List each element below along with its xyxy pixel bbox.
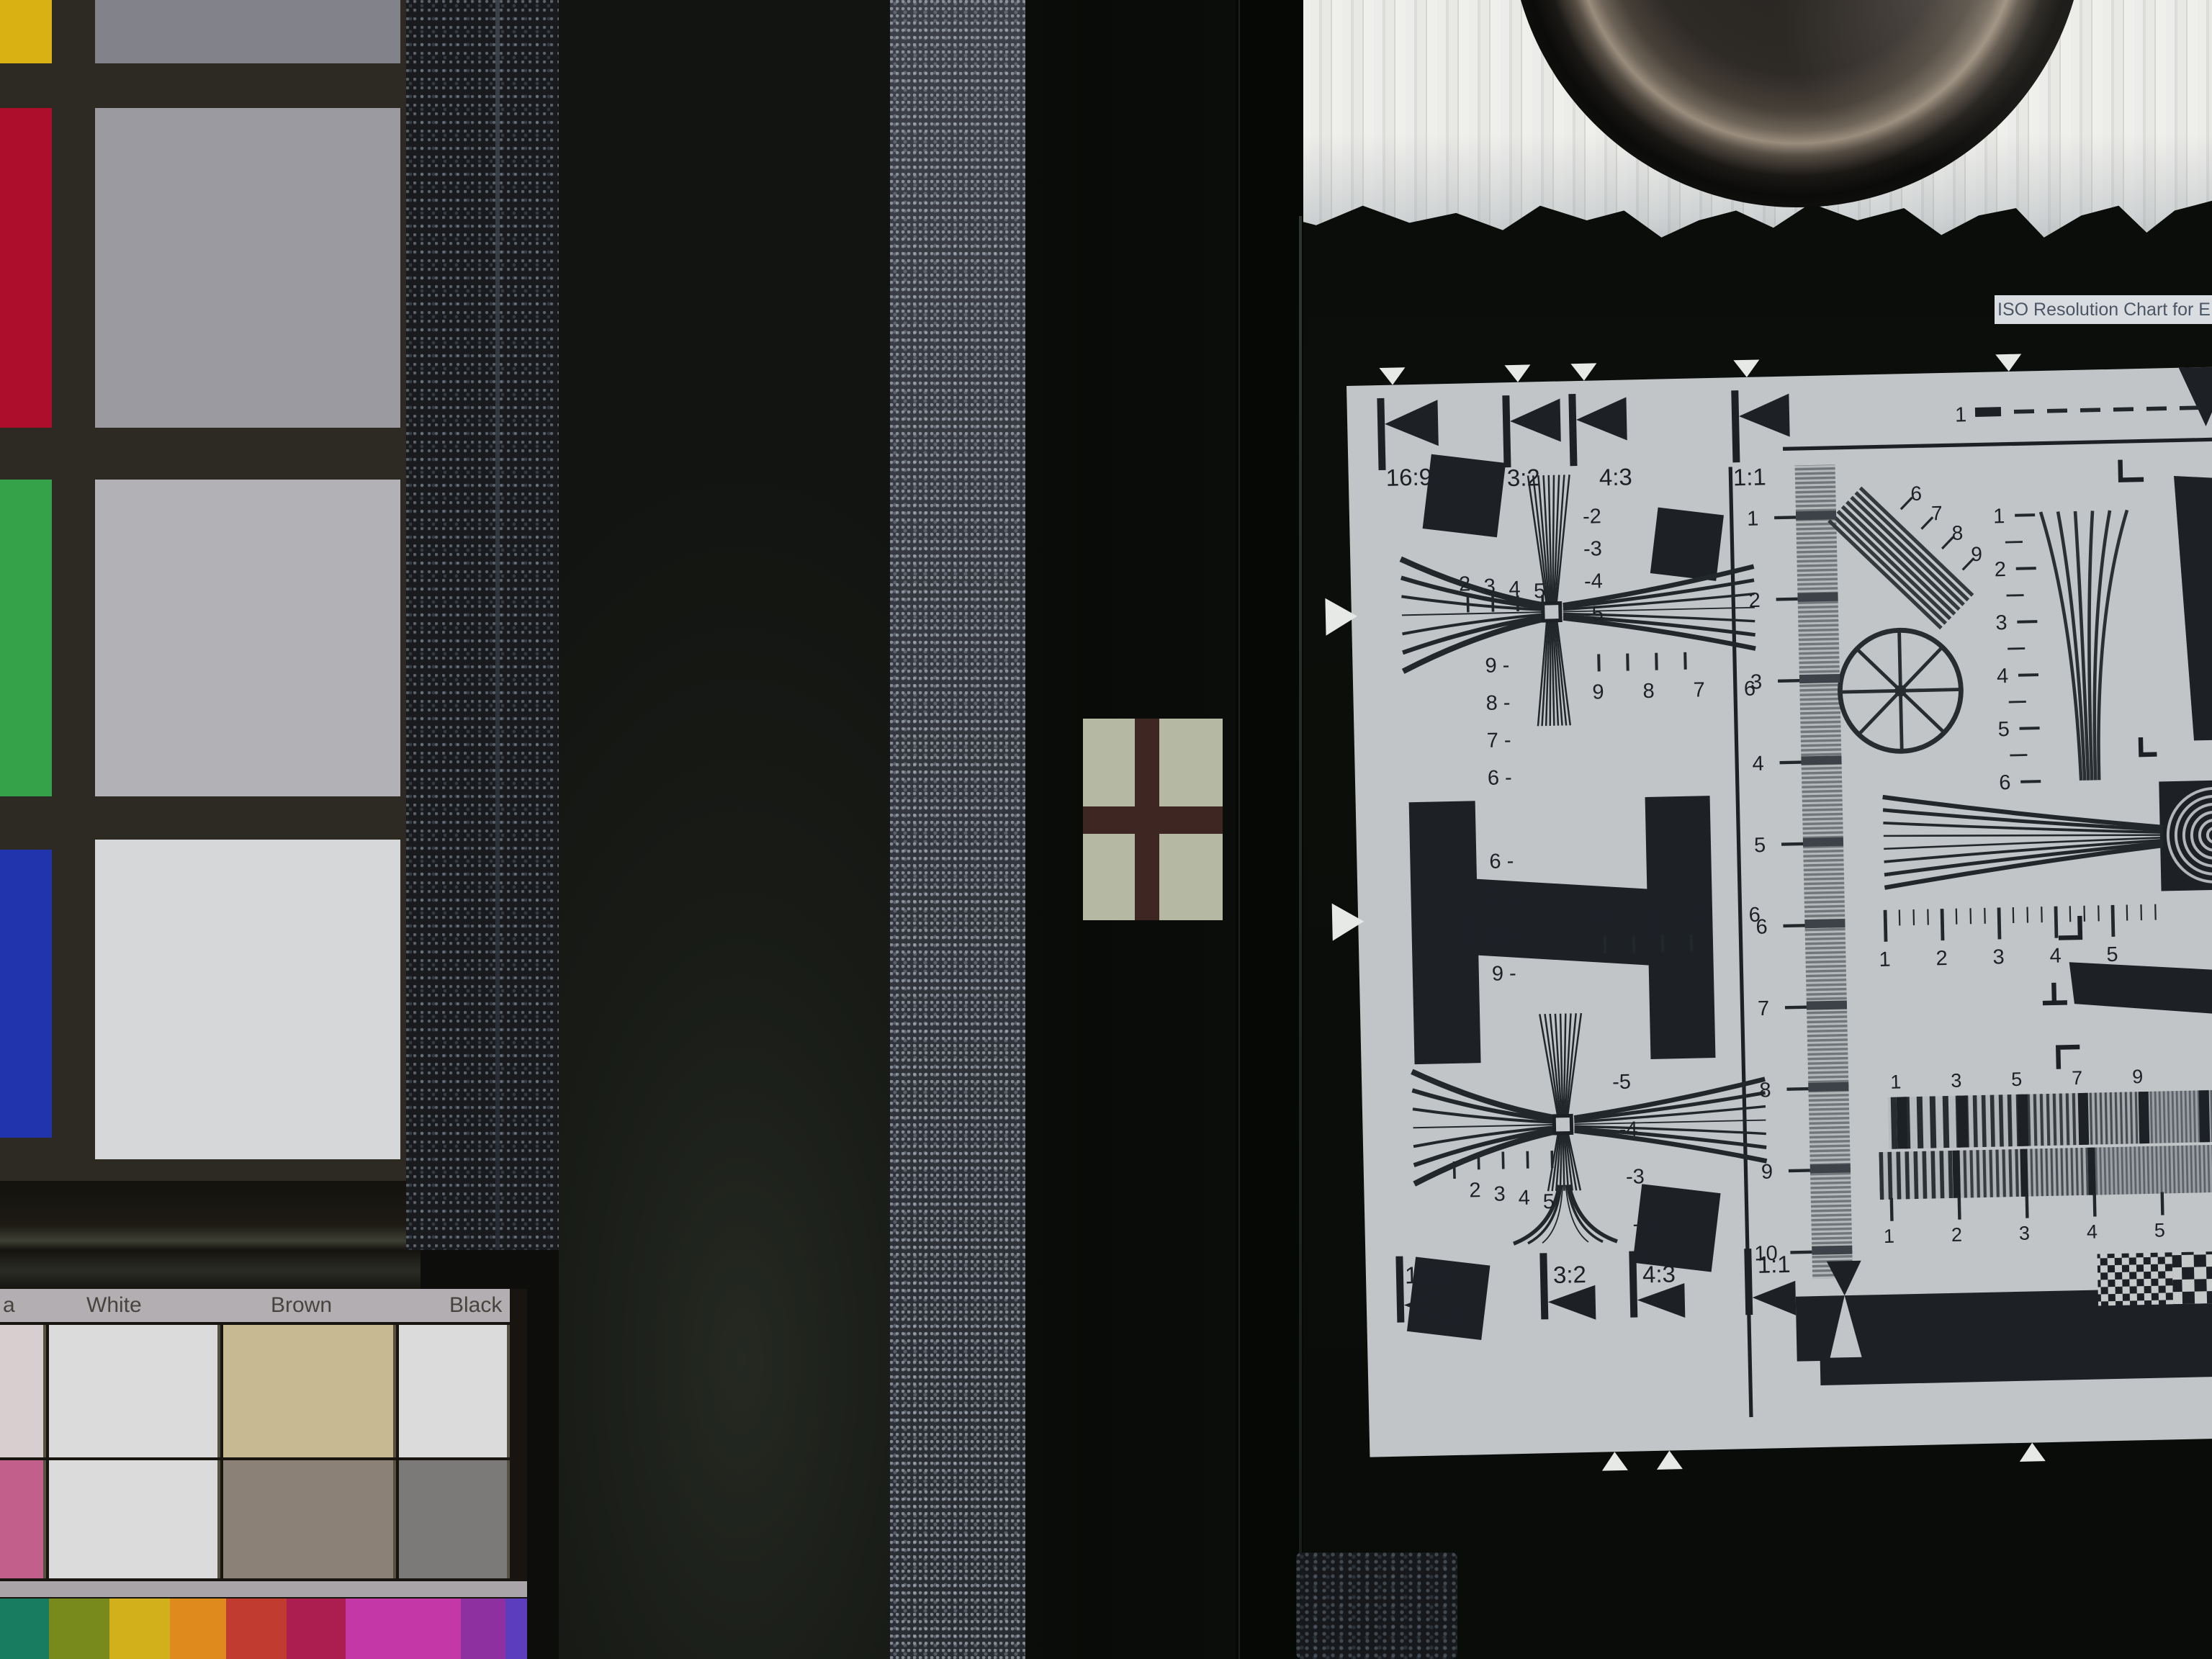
wedge-number-row: 9 8 7 6 xyxy=(1597,903,1777,930)
iso-resolution-chart: 123456789101234561234513579123456789-2-3… xyxy=(1317,348,2212,1483)
band-number: 5 xyxy=(2011,1069,2023,1090)
wedge-number: 7 - xyxy=(1486,729,1511,752)
wedge-number: 5 xyxy=(1542,1190,1555,1213)
left-scene: a White Brown Black xyxy=(0,0,1236,1659)
checkerboard-patch xyxy=(2098,1251,2212,1306)
checker-board-edge xyxy=(0,1181,421,1296)
checker-patch-gray-2 xyxy=(95,108,400,428)
chart-caption-strip: ISO Resolution Chart for E xyxy=(1995,295,2212,324)
black-square xyxy=(1650,508,1724,581)
ruler-number: 9 xyxy=(1761,1161,1773,1184)
ruler-number: 5 xyxy=(1754,834,1766,857)
frame-edge-highlight xyxy=(1238,0,1240,1659)
burst-number: 6 xyxy=(1910,482,1922,505)
band-number: 2 xyxy=(1951,1224,1963,1246)
cross-horizontal-bar xyxy=(1083,806,1223,834)
frequency-band-lower xyxy=(1879,1144,2212,1200)
fan-ruler-number: 5 xyxy=(2106,943,2118,966)
wedge-number: 9 - xyxy=(1485,654,1510,678)
fan-ruler-number: 4 xyxy=(2049,945,2062,968)
fabric-seam-highlight xyxy=(495,0,500,1250)
paint-sample-chart: a White Brown Black xyxy=(0,1289,527,1659)
photo-stage: a White Brown Black ISO Resolution Chart… xyxy=(0,0,2212,1659)
wedge-number: 6 - xyxy=(1489,850,1514,873)
burst-number: 9 xyxy=(1971,543,1982,565)
ruler-number: 7 xyxy=(1758,997,1770,1020)
paint-cell xyxy=(49,1325,220,1457)
band-number: 1 xyxy=(1884,1226,1895,1247)
paint-cell xyxy=(223,1325,396,1457)
band-number: 1 xyxy=(1890,1071,1902,1092)
wedge-number: 3 xyxy=(1493,1182,1506,1205)
checker-patch-red xyxy=(0,108,52,428)
checker-patch-gray-1 xyxy=(95,0,400,63)
aspect-label: 3:2 xyxy=(1553,1261,1587,1288)
velcro-patch xyxy=(1296,1552,1457,1659)
wedge-number: 6 xyxy=(1999,771,2011,794)
paint-cell xyxy=(399,1325,510,1457)
paint-cell xyxy=(49,1460,220,1578)
wedge-number-row: 9 8 7 6 xyxy=(1592,677,1772,703)
aspect-label: 16:9 xyxy=(1405,1261,1452,1288)
wedge-number: 8 - xyxy=(1485,691,1511,715)
ruler-number: 8 xyxy=(1759,1079,1771,1102)
paint-bar xyxy=(287,1599,346,1659)
wedge-number: -3 xyxy=(1583,537,1602,561)
paint-bar xyxy=(49,1599,109,1659)
paint-label-partial: a xyxy=(3,1293,15,1318)
wedge-number: 6 - xyxy=(1488,766,1513,790)
wedge-number: 2 xyxy=(1459,572,1471,595)
wedge-number: 5 xyxy=(1997,718,2010,741)
wedge-number: 5 xyxy=(1534,580,1546,603)
wedge-number: 4 xyxy=(1518,1187,1530,1210)
wedge-number: 3 xyxy=(1995,611,2008,634)
wedge-number: -4 xyxy=(1619,1118,1637,1141)
dark-fabric-panel xyxy=(406,0,562,1250)
checker-patch-gray-3 xyxy=(95,480,400,796)
spoked-circle xyxy=(1839,629,1963,753)
aspect-label: 4:3 xyxy=(1642,1260,1676,1287)
wedge-number: 7 - xyxy=(1490,887,1515,911)
paint-label-brown: Brown xyxy=(271,1293,332,1318)
frame-edge-strip xyxy=(1236,0,1303,1659)
band-number: 7 xyxy=(2072,1067,2083,1089)
aspect-label: 16:9 xyxy=(1385,463,1432,490)
band-number: 4 xyxy=(2087,1221,2098,1243)
wedge-number: 3 xyxy=(1483,575,1496,598)
paint-cell xyxy=(399,1460,510,1578)
checker-patch-blue xyxy=(0,850,52,1138)
paint-cell xyxy=(223,1460,396,1578)
burst-number: 8 xyxy=(1951,521,1963,544)
black-square xyxy=(1423,454,1506,538)
fan-ruler-number: 1 xyxy=(1879,948,1891,971)
wedge-number: 9 - xyxy=(1492,962,1517,986)
right-scene: ISO Resolution Chart for E xyxy=(1236,0,2212,1659)
paint-label-white: White xyxy=(86,1293,142,1318)
aspect-label: 3:2 xyxy=(1506,464,1540,491)
paint-bar xyxy=(109,1599,170,1659)
ruler-number: 1 xyxy=(1747,508,1759,531)
wedge-number: 4 xyxy=(1509,577,1521,601)
aspect-label: 1:1 xyxy=(1757,1251,1791,1278)
wedge-number: -5 xyxy=(1612,1071,1631,1094)
wedge-number: -3 xyxy=(1626,1165,1645,1189)
checker-patch-green xyxy=(0,480,52,796)
aspect-label: 1:1 xyxy=(1732,463,1766,490)
chart-caption-text: ISO Resolution Chart for E xyxy=(1995,295,2211,324)
zone-plate xyxy=(2159,779,2212,891)
ruler-number: 2 xyxy=(1748,589,1761,612)
checker-patch-yellow xyxy=(0,0,52,63)
wedge-number: 1 xyxy=(1993,505,2005,528)
paint-bar xyxy=(461,1599,505,1659)
paint-bar xyxy=(226,1599,287,1659)
paint-color-bars xyxy=(0,1599,527,1659)
wedge-number: -5 xyxy=(1585,602,1604,626)
paint-bar xyxy=(346,1599,461,1659)
wedge-number: 2 xyxy=(1469,1179,1481,1202)
burst-number: 7 xyxy=(1931,502,1943,524)
wedge-number: -2 xyxy=(1583,505,1601,529)
paint-label-black: Black xyxy=(449,1293,502,1318)
paint-cell xyxy=(0,1460,46,1578)
ruler-number: 4 xyxy=(1752,752,1764,775)
checker-patch-white xyxy=(95,840,400,1159)
wedge-number: 8 - xyxy=(1491,925,1516,948)
paint-gray-strip xyxy=(0,1581,527,1597)
speckled-gray-strip xyxy=(890,0,1025,1659)
band-number: 3 xyxy=(2019,1223,2031,1244)
paint-bar xyxy=(170,1599,226,1659)
wedge-number: 4 xyxy=(1997,665,2009,688)
cross-registration-target xyxy=(1083,719,1223,920)
board-edge-highlight xyxy=(1299,216,1302,1656)
color-checker xyxy=(0,0,418,1198)
fan-ruler-number: 2 xyxy=(1935,947,1948,970)
paint-bar xyxy=(505,1599,527,1659)
band-number: 3 xyxy=(1951,1070,1962,1092)
wedge-number: -4 xyxy=(1584,570,1603,593)
smooth-black-panel xyxy=(559,0,890,1659)
aspect-label: 4:3 xyxy=(1599,463,1632,490)
wedge-number: 2 xyxy=(1994,558,2006,581)
frequency-band-upper xyxy=(1888,1089,2212,1149)
wedge-number: -2 xyxy=(1632,1213,1651,1236)
paint-label-strip: a White Brown Black xyxy=(0,1289,510,1322)
band-number: 9 xyxy=(2132,1066,2144,1087)
dash-label: 1 xyxy=(1955,403,1967,426)
dash-thick xyxy=(1975,407,2001,417)
fan-ruler-number: 3 xyxy=(1992,945,2005,968)
paint-cell xyxy=(0,1325,46,1457)
band-number: 5 xyxy=(2154,1219,2166,1241)
paint-bar xyxy=(0,1599,49,1659)
